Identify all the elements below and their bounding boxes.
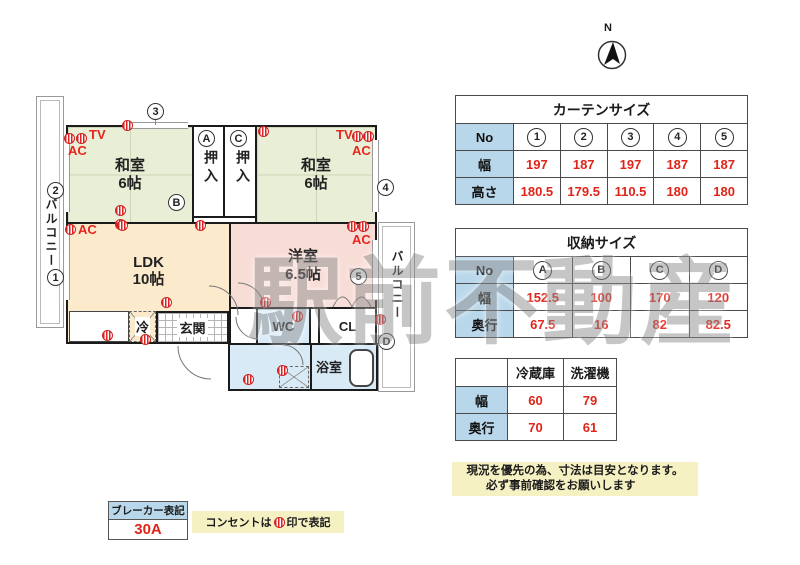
storage-width-value: 170 [631,284,690,311]
storage-size-table: 収納サイズ No A B C D 幅 152.5 100 170 120 奥行 … [455,228,748,338]
balcony-right-label: バルコニー [389,250,406,320]
outlet-icon [102,330,113,341]
floorplan-page: N バルコニー バルコニー 和室 6帖 押入 押入 和室 6帖 LDK 10帖 … [0,0,800,565]
outlet-icon [140,334,151,345]
outlet-icon [363,131,374,142]
outlet-icon [274,517,285,528]
storage-no-header: No [456,257,514,284]
outlet-icon [122,120,133,131]
ac-label: AC [352,233,371,246]
balcony-left-label: バルコニー [43,198,60,268]
caution-line-2: 必ず事前確認をお願いします [486,479,636,494]
storage-width-value: 152.5 [514,284,573,311]
closet-c-label: 押入 [233,150,253,186]
curtain-width-value: 197 [607,151,654,178]
outlet-icon [65,224,76,235]
room-bathroom-label: 浴室 [316,357,342,376]
appliance-washer-header: 洗濯機 [564,359,617,387]
breaker-box: ブレーカー表記 30A [108,501,188,540]
appliance-depth-value: 70 [508,414,564,441]
appliance-depth-header: 奥行 [456,414,508,441]
marker-window-5: 5 [350,268,367,285]
curtain-col: 3 [607,124,654,151]
outlet-icon [195,220,206,231]
curtain-col: 4 [654,124,701,151]
outlet-icon [258,126,269,137]
room-cl: CL [318,307,377,345]
storage-col: C [631,257,690,284]
curtain-width-value: 187 [654,151,701,178]
storage-col-marker: B [592,261,611,280]
room-washitsu-right-label: 和室 6帖 [301,157,331,192]
marker-window-2: 2 [47,182,64,199]
fridge-space-label: 冷 [135,317,150,336]
window-3 [128,122,188,129]
room-yoshitsu-label: 洋室 6.5帖 [285,248,321,283]
ac-label: AC [78,223,97,236]
curtain-width-header: 幅 [456,151,514,178]
room-wc: WC [256,307,311,345]
storage-col-marker: D [709,261,728,280]
curtain-width-value: 187 [701,151,748,178]
outlet-icon [352,131,363,142]
room-washitsu-left-label: 和室 6帖 [115,157,145,192]
storage-depth-value: 82 [631,311,690,338]
outlet-icon [347,221,358,232]
breaker-value: 30A [109,520,187,539]
curtain-col-marker: 2 [574,128,593,147]
ac-label: AC [68,144,87,157]
curtain-size-table: カーテンサイズ No 1 2 3 4 5 幅 197 187 197 187 1… [455,95,748,205]
curtain-height-value: 179.5 [560,178,607,205]
storage-depth-header: 奥行 [456,311,514,338]
appliance-size-table: 冷蔵庫 洗濯機 幅 60 79 奥行 70 61 [455,358,617,441]
window-1 [63,228,70,300]
curtain-col-marker: 1 [527,128,546,147]
appliance-blank-cell [456,359,508,387]
storage-col-marker: C [650,261,669,280]
marker-window-1: 1 [47,269,64,286]
curtain-height-value: 110.5 [607,178,654,205]
appliance-width-value: 79 [564,387,617,414]
outlet-legend-prefix: コンセントは [206,514,272,530]
room-genkan: 玄関 [156,311,229,344]
marker-storage-d: D [378,333,395,350]
storage-col-marker: A [533,261,552,280]
storage-depth-value: 16 [572,311,631,338]
appliance-fridge-header: 冷蔵庫 [508,359,564,387]
room-ldk-label: LDK 10帖 [133,254,165,289]
curtain-col: 2 [560,124,607,151]
curtain-col: 5 [701,124,748,151]
tv-label: TV [336,128,353,141]
outlet-icon [375,314,386,325]
marker-window-3: 3 [147,103,164,120]
kitchen-counter-icon [69,311,129,342]
outlet-icon [292,311,303,322]
outlet-icon [161,297,172,308]
room-wc-label: WC [273,319,295,334]
curtain-height-value: 180 [701,178,748,205]
appliance-width-header: 幅 [456,387,508,414]
outlet-icon [358,221,369,232]
outlet-icon [243,374,254,385]
outlet-icon [117,220,128,231]
storage-width-value: 120 [689,284,748,311]
caution-line-1: 現況を優先の為、寸法は目安となります。 [466,464,683,479]
curtain-width-value: 187 [560,151,607,178]
outlet-legend: コンセントは 印で表記 [192,511,344,533]
storage-col: A [514,257,573,284]
compass-icon [594,36,630,72]
appliance-depth-value: 61 [564,414,617,441]
outlet-icon [277,365,288,376]
storage-width-value: 100 [572,284,631,311]
caution-note: 現況を優先の為、寸法は目安となります。 必ず事前確認をお願いします [452,462,698,496]
bathtub-icon [349,349,374,387]
curtain-height-value: 180.5 [514,178,561,205]
storage-width-header: 幅 [456,284,514,311]
storage-table-title: 収納サイズ [456,229,748,257]
curtain-col-marker: 4 [668,128,687,147]
compass-north-label: N [604,22,612,34]
marker-storage-c: C [230,130,247,147]
room-genkan-label: 玄関 [177,318,207,337]
outlet-icon [115,205,126,216]
marker-storage-b: B [168,194,185,211]
outlet-icon [260,297,271,308]
storage-col: B [572,257,631,284]
curtain-col-marker: 5 [715,128,734,147]
curtain-height-value: 180 [654,178,701,205]
curtain-col-marker: 3 [621,128,640,147]
storage-depth-value: 67.5 [514,311,573,338]
storage-depth-value: 82.5 [689,311,748,338]
room-cl-label: CL [339,319,356,334]
tv-label: TV [89,128,106,141]
closet-a-label: 押入 [201,150,221,186]
outlet-legend-suffix: 印で表記 [287,514,331,530]
curtain-col: 1 [514,124,561,151]
window-4 [372,140,379,212]
curtain-no-header: No [456,124,514,151]
window-5 [372,240,379,300]
marker-window-4: 4 [377,179,394,196]
breaker-title: ブレーカー表記 [109,502,187,520]
storage-col: D [689,257,748,284]
curtain-table-title: カーテンサイズ [456,96,748,124]
marker-storage-a: A [198,130,215,147]
ac-label: AC [352,144,371,157]
appliance-width-value: 60 [508,387,564,414]
curtain-width-value: 197 [514,151,561,178]
curtain-height-header: 高さ [456,178,514,205]
